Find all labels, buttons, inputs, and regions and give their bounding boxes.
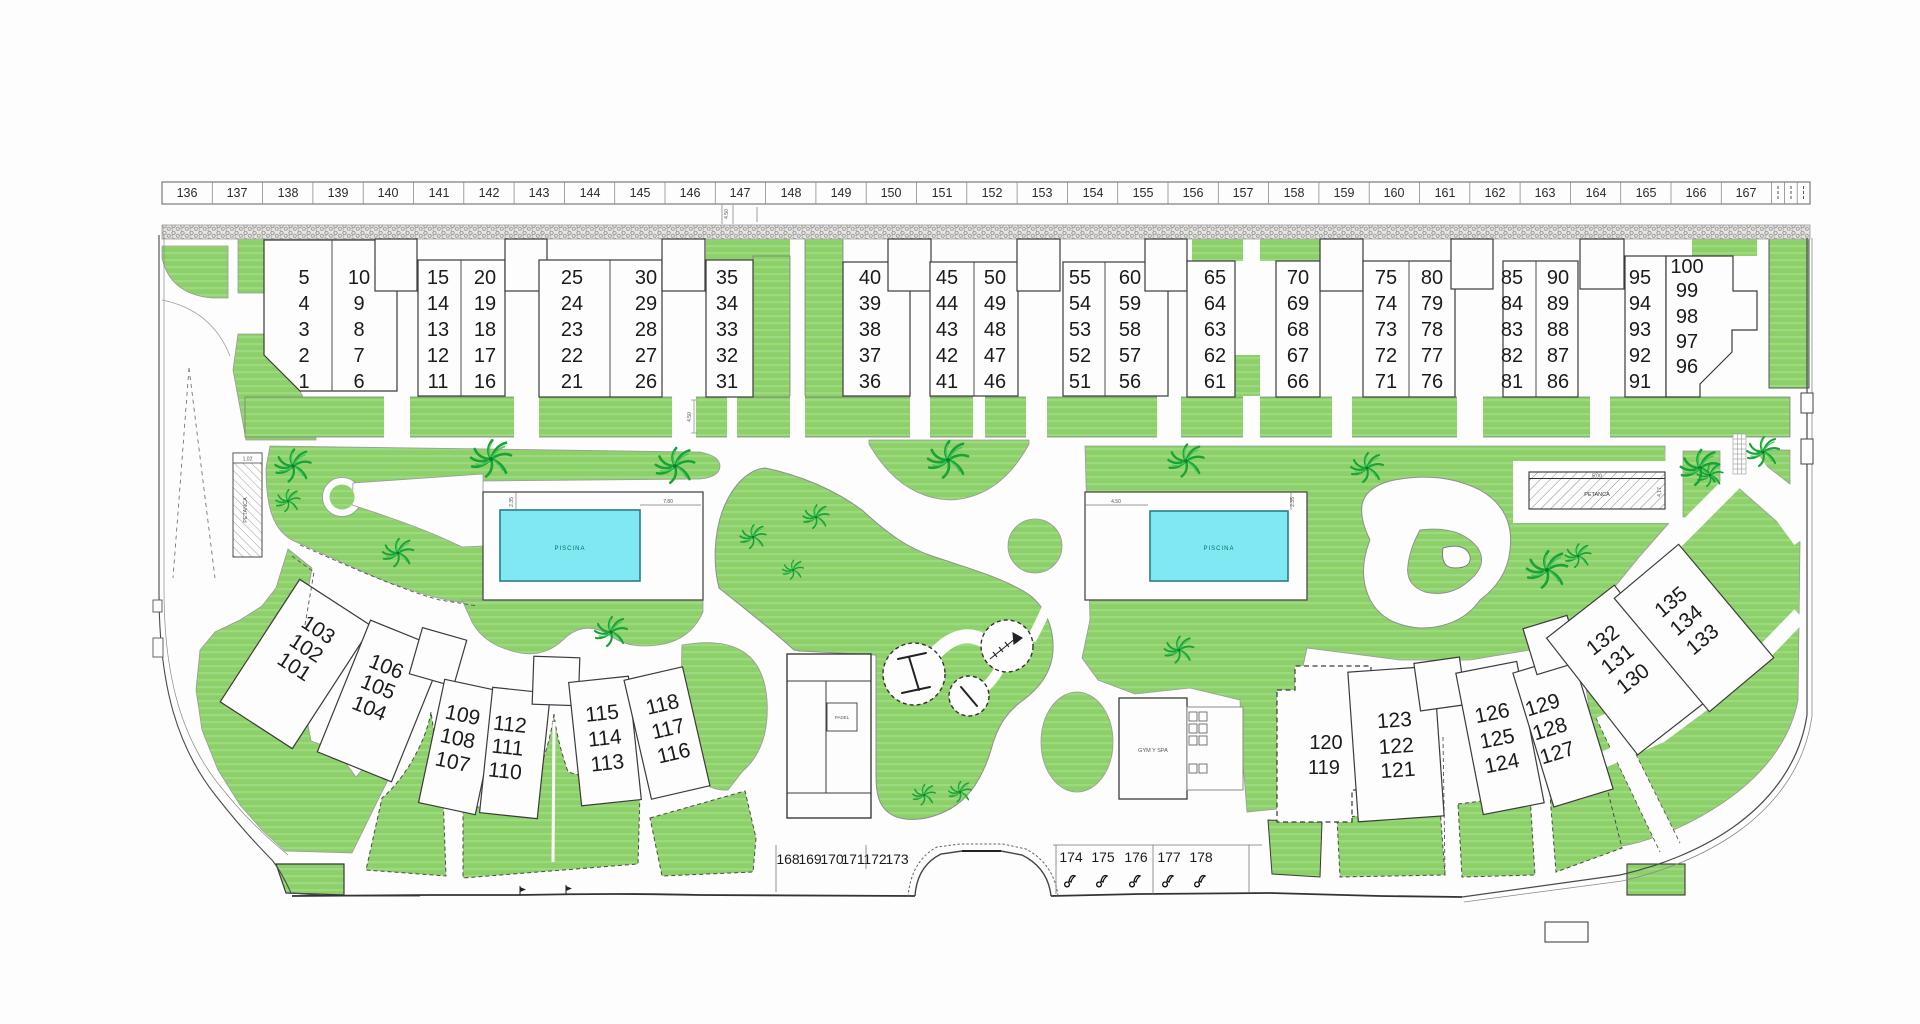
svg-text:55: 55	[1069, 267, 1091, 289]
svg-text:166: 166	[1686, 186, 1707, 200]
svg-text:45: 45	[936, 267, 958, 289]
svg-text:91: 91	[1629, 371, 1651, 393]
svg-text:81: 81	[1501, 371, 1523, 393]
svg-text:71: 71	[1375, 371, 1397, 393]
svg-text:87: 87	[1547, 345, 1569, 367]
svg-text:97: 97	[1676, 331, 1698, 353]
svg-text:153: 153	[1032, 186, 1053, 200]
svg-text:171: 171	[841, 851, 865, 867]
svg-text:165: 165	[1636, 186, 1657, 200]
svg-text:47: 47	[984, 345, 1006, 367]
svg-text:111: 111	[490, 735, 524, 761]
svg-text:119: 119	[1308, 757, 1340, 779]
svg-text:21: 21	[561, 371, 583, 393]
svg-text:33: 33	[716, 319, 738, 341]
svg-text:24: 24	[561, 293, 583, 315]
svg-text:121: 121	[1380, 758, 1417, 783]
svg-text:142: 142	[479, 186, 500, 200]
svg-text:89: 89	[1547, 293, 1569, 315]
svg-text:172: 172	[863, 851, 887, 867]
svg-text:11: 11	[428, 371, 449, 393]
svg-text:151: 151	[932, 186, 953, 200]
svg-text:51: 51	[1069, 371, 1091, 393]
svg-text:155: 155	[1133, 186, 1154, 200]
svg-text:175: 175	[1091, 849, 1115, 865]
svg-text:94: 94	[1629, 293, 1651, 315]
svg-text:177: 177	[1157, 849, 1181, 865]
svg-text:145: 145	[630, 186, 651, 200]
svg-text:3: 3	[298, 319, 309, 341]
svg-text:50: 50	[984, 267, 1006, 289]
svg-text:162: 162	[1485, 186, 1506, 200]
svg-text:56: 56	[1119, 371, 1141, 393]
svg-text:14: 14	[427, 293, 449, 315]
svg-text:1: 1	[298, 371, 309, 393]
svg-text:174: 174	[1059, 849, 1083, 865]
svg-text:22: 22	[561, 345, 583, 367]
svg-text:123: 123	[1376, 708, 1413, 733]
svg-text:115: 115	[584, 700, 620, 726]
svg-text:74: 74	[1375, 293, 1397, 315]
svg-text:178: 178	[1189, 849, 1213, 865]
svg-text:49: 49	[984, 293, 1006, 315]
svg-text:41: 41	[936, 371, 958, 393]
svg-text:10: 10	[348, 267, 370, 289]
svg-text:34: 34	[716, 293, 738, 315]
svg-text:70: 70	[1287, 267, 1309, 289]
svg-text:164: 164	[1586, 186, 1607, 200]
svg-text:161: 161	[1435, 186, 1456, 200]
svg-text:67: 67	[1287, 345, 1309, 367]
svg-text:PETANCA: PETANCA	[243, 497, 249, 523]
svg-text:7.80: 7.80	[663, 499, 673, 505]
svg-text:PADEL: PADEL	[835, 715, 850, 720]
svg-text:114: 114	[587, 725, 623, 751]
svg-text:136: 136	[177, 186, 198, 200]
svg-text:112: 112	[492, 712, 528, 738]
svg-text:48: 48	[984, 319, 1006, 341]
svg-text:44: 44	[936, 293, 958, 315]
svg-text:149: 149	[831, 186, 852, 200]
svg-text:76: 76	[1421, 371, 1443, 393]
svg-text:140: 140	[378, 186, 399, 200]
svg-text:139: 139	[328, 186, 349, 200]
svg-text:85: 85	[1501, 267, 1523, 289]
svg-text:63: 63	[1204, 319, 1226, 341]
svg-text:46: 46	[984, 371, 1006, 393]
svg-text:1,02: 1,02	[243, 457, 253, 463]
svg-text:32: 32	[716, 345, 738, 367]
svg-text:69: 69	[1287, 293, 1309, 315]
svg-text:5,00: 5,00	[1592, 474, 1602, 480]
svg-text:167: 167	[1736, 186, 1757, 200]
svg-text:35: 35	[716, 267, 738, 289]
svg-text:138: 138	[278, 186, 299, 200]
svg-text:73: 73	[1375, 319, 1397, 341]
svg-text:68: 68	[1287, 319, 1309, 341]
svg-text:141: 141	[429, 186, 450, 200]
svg-text:20: 20	[474, 267, 496, 289]
svg-text:4,17: 4,17	[1657, 487, 1663, 497]
svg-text:99: 99	[1676, 280, 1698, 302]
svg-text:39: 39	[859, 293, 881, 315]
svg-text:53: 53	[1069, 319, 1091, 341]
svg-text:163: 163	[1535, 186, 1556, 200]
svg-text:168: 168	[776, 851, 800, 867]
svg-text:18: 18	[474, 319, 496, 341]
svg-text:17: 17	[474, 345, 496, 367]
svg-text:95: 95	[1629, 267, 1651, 289]
svg-text:146: 146	[680, 186, 701, 200]
svg-text:83: 83	[1501, 319, 1523, 341]
svg-text:28: 28	[635, 319, 657, 341]
svg-text:PISCINA: PISCINA	[554, 546, 585, 552]
svg-text:64: 64	[1204, 293, 1226, 315]
svg-text:PISCINA: PISCINA	[1203, 546, 1234, 552]
svg-text:148: 148	[781, 186, 802, 200]
svg-text:43: 43	[936, 319, 958, 341]
svg-text:4.50: 4.50	[1111, 499, 1121, 505]
svg-text:159: 159	[1334, 186, 1355, 200]
svg-text:78: 78	[1421, 319, 1443, 341]
svg-text:79: 79	[1421, 293, 1443, 315]
svg-text:15: 15	[427, 267, 449, 289]
svg-text:61: 61	[1204, 371, 1226, 393]
svg-text:57: 57	[1119, 345, 1141, 367]
svg-text:23: 23	[561, 319, 583, 341]
svg-text:37: 37	[859, 345, 881, 367]
svg-text:13: 13	[427, 319, 449, 341]
svg-text:66: 66	[1287, 371, 1309, 393]
svg-text:2: 2	[298, 345, 309, 367]
svg-text:52: 52	[1069, 345, 1091, 367]
svg-text:25: 25	[561, 267, 583, 289]
svg-text:176: 176	[1124, 849, 1148, 865]
svg-text:169: 169	[798, 851, 822, 867]
svg-text:143: 143	[529, 186, 550, 200]
svg-text:100: 100	[1670, 256, 1703, 278]
svg-text:58: 58	[1119, 319, 1141, 341]
svg-text:72: 72	[1375, 345, 1397, 367]
svg-text:62: 62	[1204, 345, 1226, 367]
svg-text:110: 110	[487, 758, 523, 784]
svg-text:PETANCA: PETANCA	[1584, 492, 1610, 498]
svg-text:60: 60	[1119, 267, 1141, 289]
svg-text:7: 7	[353, 345, 364, 367]
svg-text:16: 16	[474, 371, 496, 393]
svg-text:88: 88	[1547, 319, 1569, 341]
svg-text:GYM Y SPA: GYM Y SPA	[1138, 748, 1168, 754]
svg-text:144: 144	[580, 186, 601, 200]
svg-text:4: 4	[298, 293, 309, 315]
svg-text:59: 59	[1119, 293, 1141, 315]
svg-text:8: 8	[353, 319, 364, 341]
svg-text:26: 26	[635, 371, 657, 393]
svg-text:147: 147	[730, 186, 751, 200]
svg-text:86: 86	[1547, 371, 1569, 393]
svg-text:4.50: 4.50	[687, 412, 693, 422]
svg-text:150: 150	[881, 186, 902, 200]
svg-text:54: 54	[1069, 293, 1091, 315]
svg-text:38: 38	[859, 319, 881, 341]
svg-text:77: 77	[1421, 345, 1443, 367]
svg-text:137: 137	[227, 186, 248, 200]
svg-text:160: 160	[1384, 186, 1405, 200]
svg-text:90: 90	[1547, 267, 1569, 289]
svg-text:4.50: 4.50	[724, 209, 730, 219]
svg-text:30: 30	[635, 267, 657, 289]
svg-text:82: 82	[1501, 345, 1523, 367]
svg-text:6: 6	[353, 371, 364, 393]
svg-text:92: 92	[1629, 345, 1651, 367]
svg-text:154: 154	[1083, 186, 1104, 200]
svg-text:152: 152	[982, 186, 1003, 200]
svg-text:156: 156	[1183, 186, 1204, 200]
svg-text:36: 36	[859, 371, 881, 393]
svg-text:2.35: 2.35	[1290, 497, 1296, 507]
svg-text:93: 93	[1629, 319, 1651, 341]
svg-text:157: 157	[1233, 186, 1254, 200]
svg-text:40: 40	[859, 267, 881, 289]
svg-text:173: 173	[885, 851, 909, 867]
svg-text:42: 42	[936, 345, 958, 367]
svg-text:65: 65	[1204, 267, 1226, 289]
svg-text:29: 29	[635, 293, 657, 315]
svg-text:5: 5	[298, 267, 309, 289]
svg-text:31: 31	[716, 371, 738, 393]
svg-text:98: 98	[1676, 306, 1698, 328]
svg-text:19: 19	[474, 293, 496, 315]
svg-text:80: 80	[1421, 267, 1443, 289]
svg-text:96: 96	[1676, 356, 1698, 378]
svg-text:27: 27	[635, 345, 657, 367]
svg-text:84: 84	[1501, 293, 1523, 315]
svg-text:120: 120	[1309, 732, 1342, 754]
svg-text:122: 122	[1378, 734, 1415, 759]
svg-text:75: 75	[1375, 267, 1397, 289]
svg-text:158: 158	[1284, 186, 1305, 200]
svg-text:113: 113	[589, 750, 625, 776]
svg-text:12: 12	[427, 345, 449, 367]
svg-text:9: 9	[353, 293, 364, 315]
svg-text:2.35: 2.35	[509, 497, 515, 507]
